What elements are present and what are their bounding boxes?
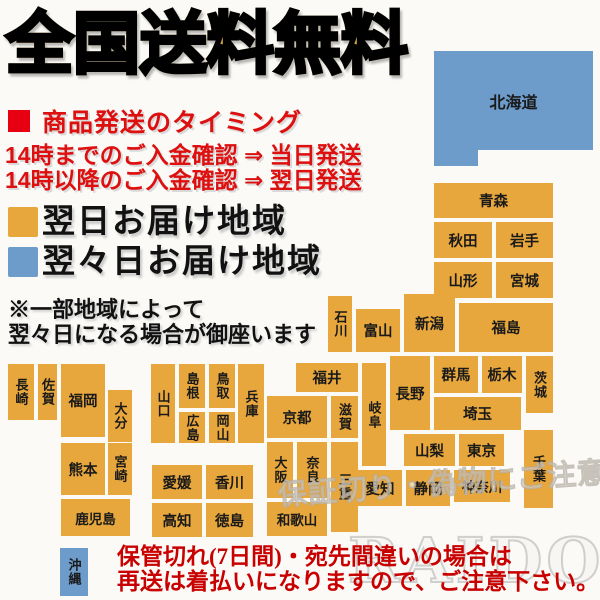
region-niigata: 新潟 bbox=[404, 294, 455, 352]
region-tokushima: 徳島 bbox=[206, 503, 253, 537]
region-ibaraki: 茨城 bbox=[526, 356, 553, 413]
region-hokkaido: 北海道 bbox=[434, 51, 593, 150]
region-shimane: 島根 bbox=[179, 364, 205, 408]
region-miyagi: 宮城 bbox=[496, 262, 553, 298]
region-kochi: 高知 bbox=[152, 503, 202, 537]
region-shiga: 滋賀 bbox=[331, 396, 358, 438]
region-okinawa: 沖縄 bbox=[60, 548, 88, 596]
storage-warning: 保管切れ(7日間)・宛先間違いの場合は 再送は着払いになりますので、ご注意下さい… bbox=[117, 544, 599, 594]
region-yamaguchi: 山口 bbox=[151, 364, 175, 443]
region-kumamoto: 熊本 bbox=[61, 443, 105, 495]
region-yamagata: 山形 bbox=[434, 262, 492, 298]
region-hokkaido-foot bbox=[434, 150, 478, 166]
region-ehime: 愛媛 bbox=[152, 465, 202, 499]
region-nagano: 長野 bbox=[390, 356, 430, 430]
region-kyoto: 京都 bbox=[267, 396, 327, 438]
region-miyazaki: 宮崎 bbox=[108, 443, 132, 495]
region-fukui: 福井 bbox=[296, 363, 358, 392]
region-oita: 大分 bbox=[108, 390, 132, 442]
region-saga: 佐賀 bbox=[38, 364, 57, 420]
region-kagoshima: 鹿児島 bbox=[61, 499, 130, 536]
region-fukushima: 福島 bbox=[459, 303, 553, 352]
region-saitama: 埼玉 bbox=[434, 397, 521, 430]
storage-warning-line1: 保管切れ(7日間)・宛先間違いの場合は bbox=[117, 544, 599, 569]
region-tochigi: 栃木 bbox=[482, 356, 522, 393]
region-hiroshima: 広島 bbox=[179, 412, 205, 443]
region-hyogo: 兵庫 bbox=[238, 364, 264, 443]
region-nagasaki: 長崎 bbox=[8, 364, 34, 420]
storage-warning-line2: 再送は着払いになりますので、ご注意下さい。 bbox=[117, 569, 599, 594]
region-gunma: 群馬 bbox=[434, 356, 478, 393]
region-kagawa: 香川 bbox=[206, 465, 253, 499]
region-akita: 秋田 bbox=[434, 222, 492, 258]
region-iwate: 岩手 bbox=[496, 222, 553, 258]
region-aomori: 青森 bbox=[434, 183, 553, 218]
region-ishikawa: 石川 bbox=[328, 296, 352, 352]
region-tottori: 鳥取 bbox=[209, 364, 235, 408]
shipping-banner: 全国送料無料 商品発送のタイミング 14時までのご入金確認 ⇒ 当日発送 14時… bbox=[0, 0, 600, 600]
region-toyama: 富山 bbox=[356, 309, 400, 352]
region-fukuoka: 福岡 bbox=[61, 364, 105, 437]
region-gifu: 岐阜 bbox=[362, 363, 386, 466]
region-okayama: 岡山 bbox=[209, 412, 235, 443]
